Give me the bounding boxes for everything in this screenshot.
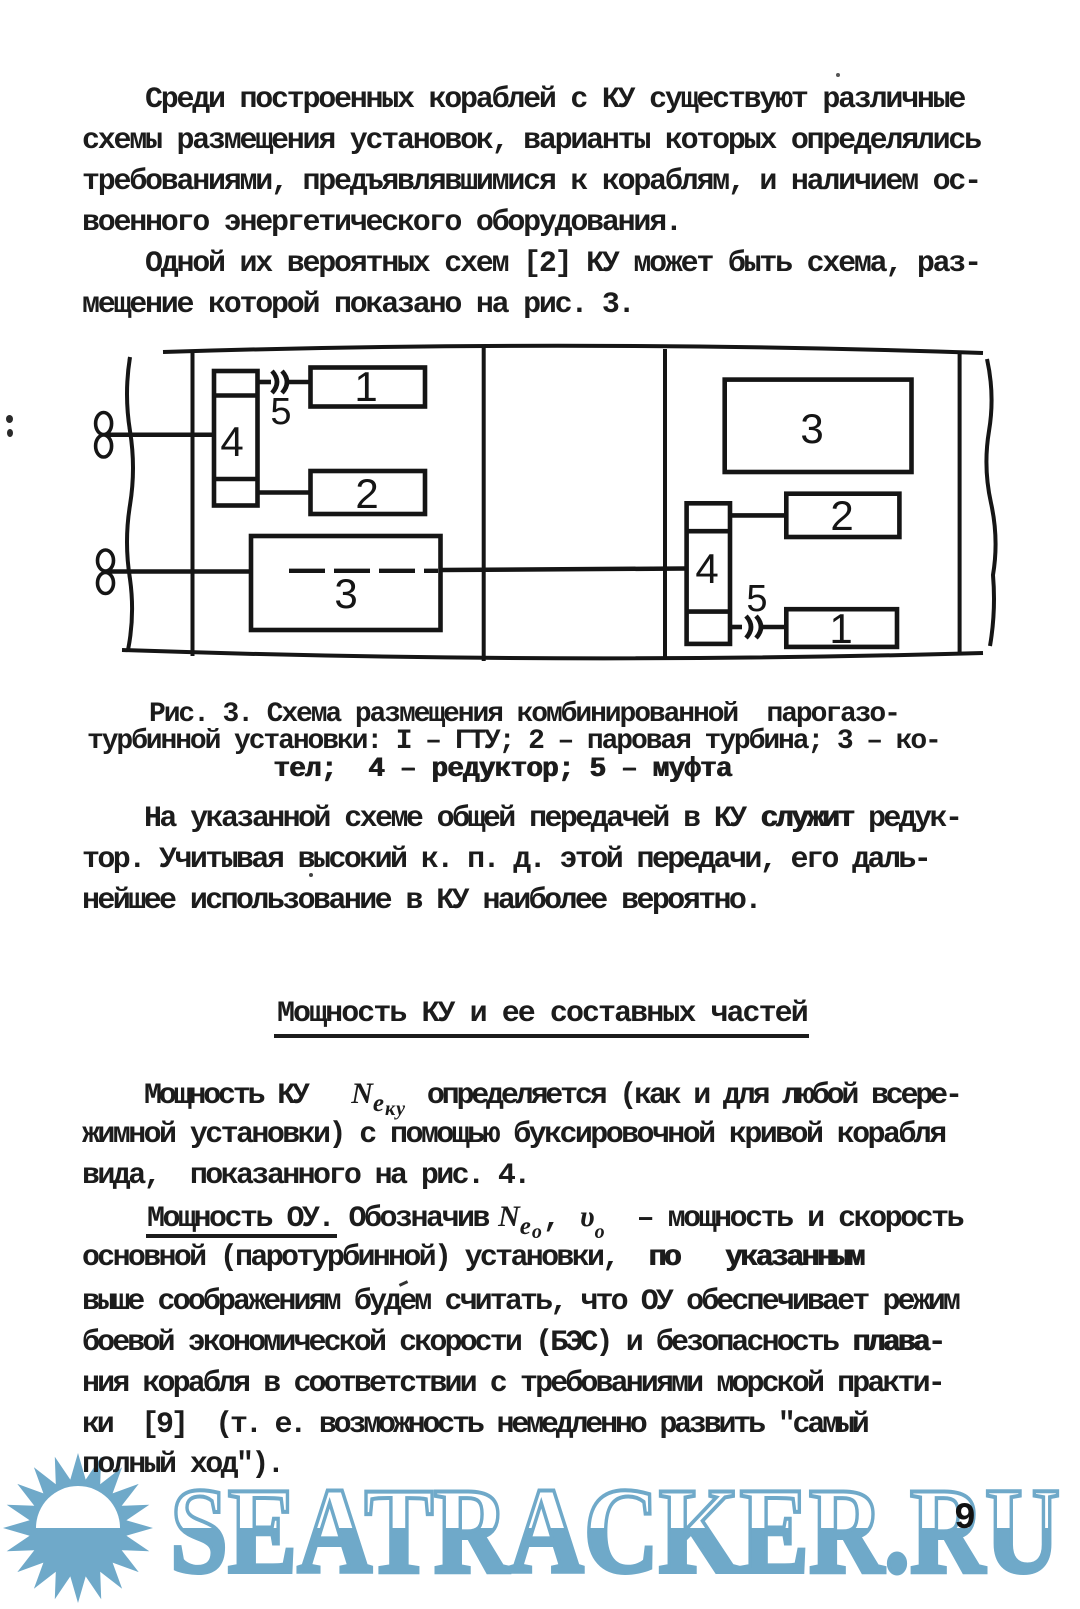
svg-text:4: 4 [695, 545, 718, 592]
svg-text:2: 2 [355, 470, 378, 517]
svg-text:1: 1 [354, 363, 377, 410]
svg-text:1: 1 [829, 605, 852, 652]
svg-text:3: 3 [800, 405, 823, 452]
svg-text:5: 5 [270, 391, 291, 433]
svg-text:4: 4 [220, 418, 243, 465]
svg-text:2: 2 [830, 492, 853, 539]
svg-text:3: 3 [334, 570, 357, 617]
svg-text:5: 5 [746, 578, 767, 620]
